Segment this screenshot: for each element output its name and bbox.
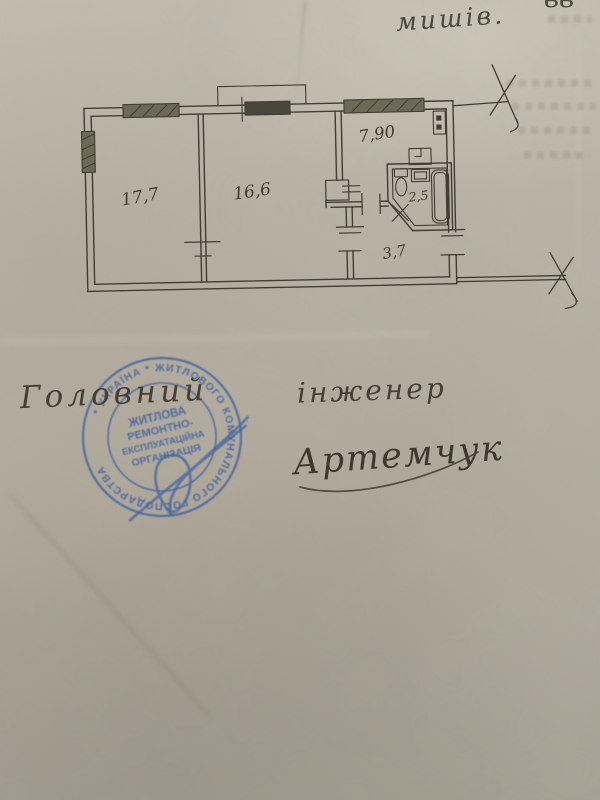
handwritten-top-annotation-partial: вв [544, 0, 574, 14]
sink-icon [411, 169, 429, 181]
entrance-door-opening [440, 230, 466, 256]
bathroom-area-label: 2,5 [407, 187, 430, 205]
hallway-area-label: 3,7 [381, 241, 408, 263]
scanned-document-page: мишів. вв [0, 0, 600, 800]
vent-duct-icon [409, 148, 431, 164]
toilet-icon [394, 169, 408, 196]
room-1-area-label: 17,7 [120, 184, 161, 210]
section-mark-top-icon [452, 64, 518, 132]
vent-grille-icon [433, 111, 445, 134]
wall-kitchen-hallway [326, 193, 388, 215]
partition-room1-room2 [182, 114, 221, 283]
partition-room2-kitchen [324, 111, 360, 201]
balcony-door-tick [242, 97, 243, 121]
window-kitchen [344, 98, 424, 113]
window-room-1 [123, 103, 179, 117]
window-balcony-door [245, 101, 290, 115]
kitchen-area-label: 7,90 [357, 122, 396, 147]
window-left-wall [81, 131, 95, 172]
room-area-labels: 17,7 16,6 7,90 2,5 3,7 [118, 121, 430, 269]
wall-room2-hallway [336, 207, 365, 280]
section-mark-bottom-icon [456, 252, 577, 311]
handwritten-title-word-2: інженер [296, 371, 447, 409]
room-2-area-label: 16,6 [232, 179, 272, 204]
